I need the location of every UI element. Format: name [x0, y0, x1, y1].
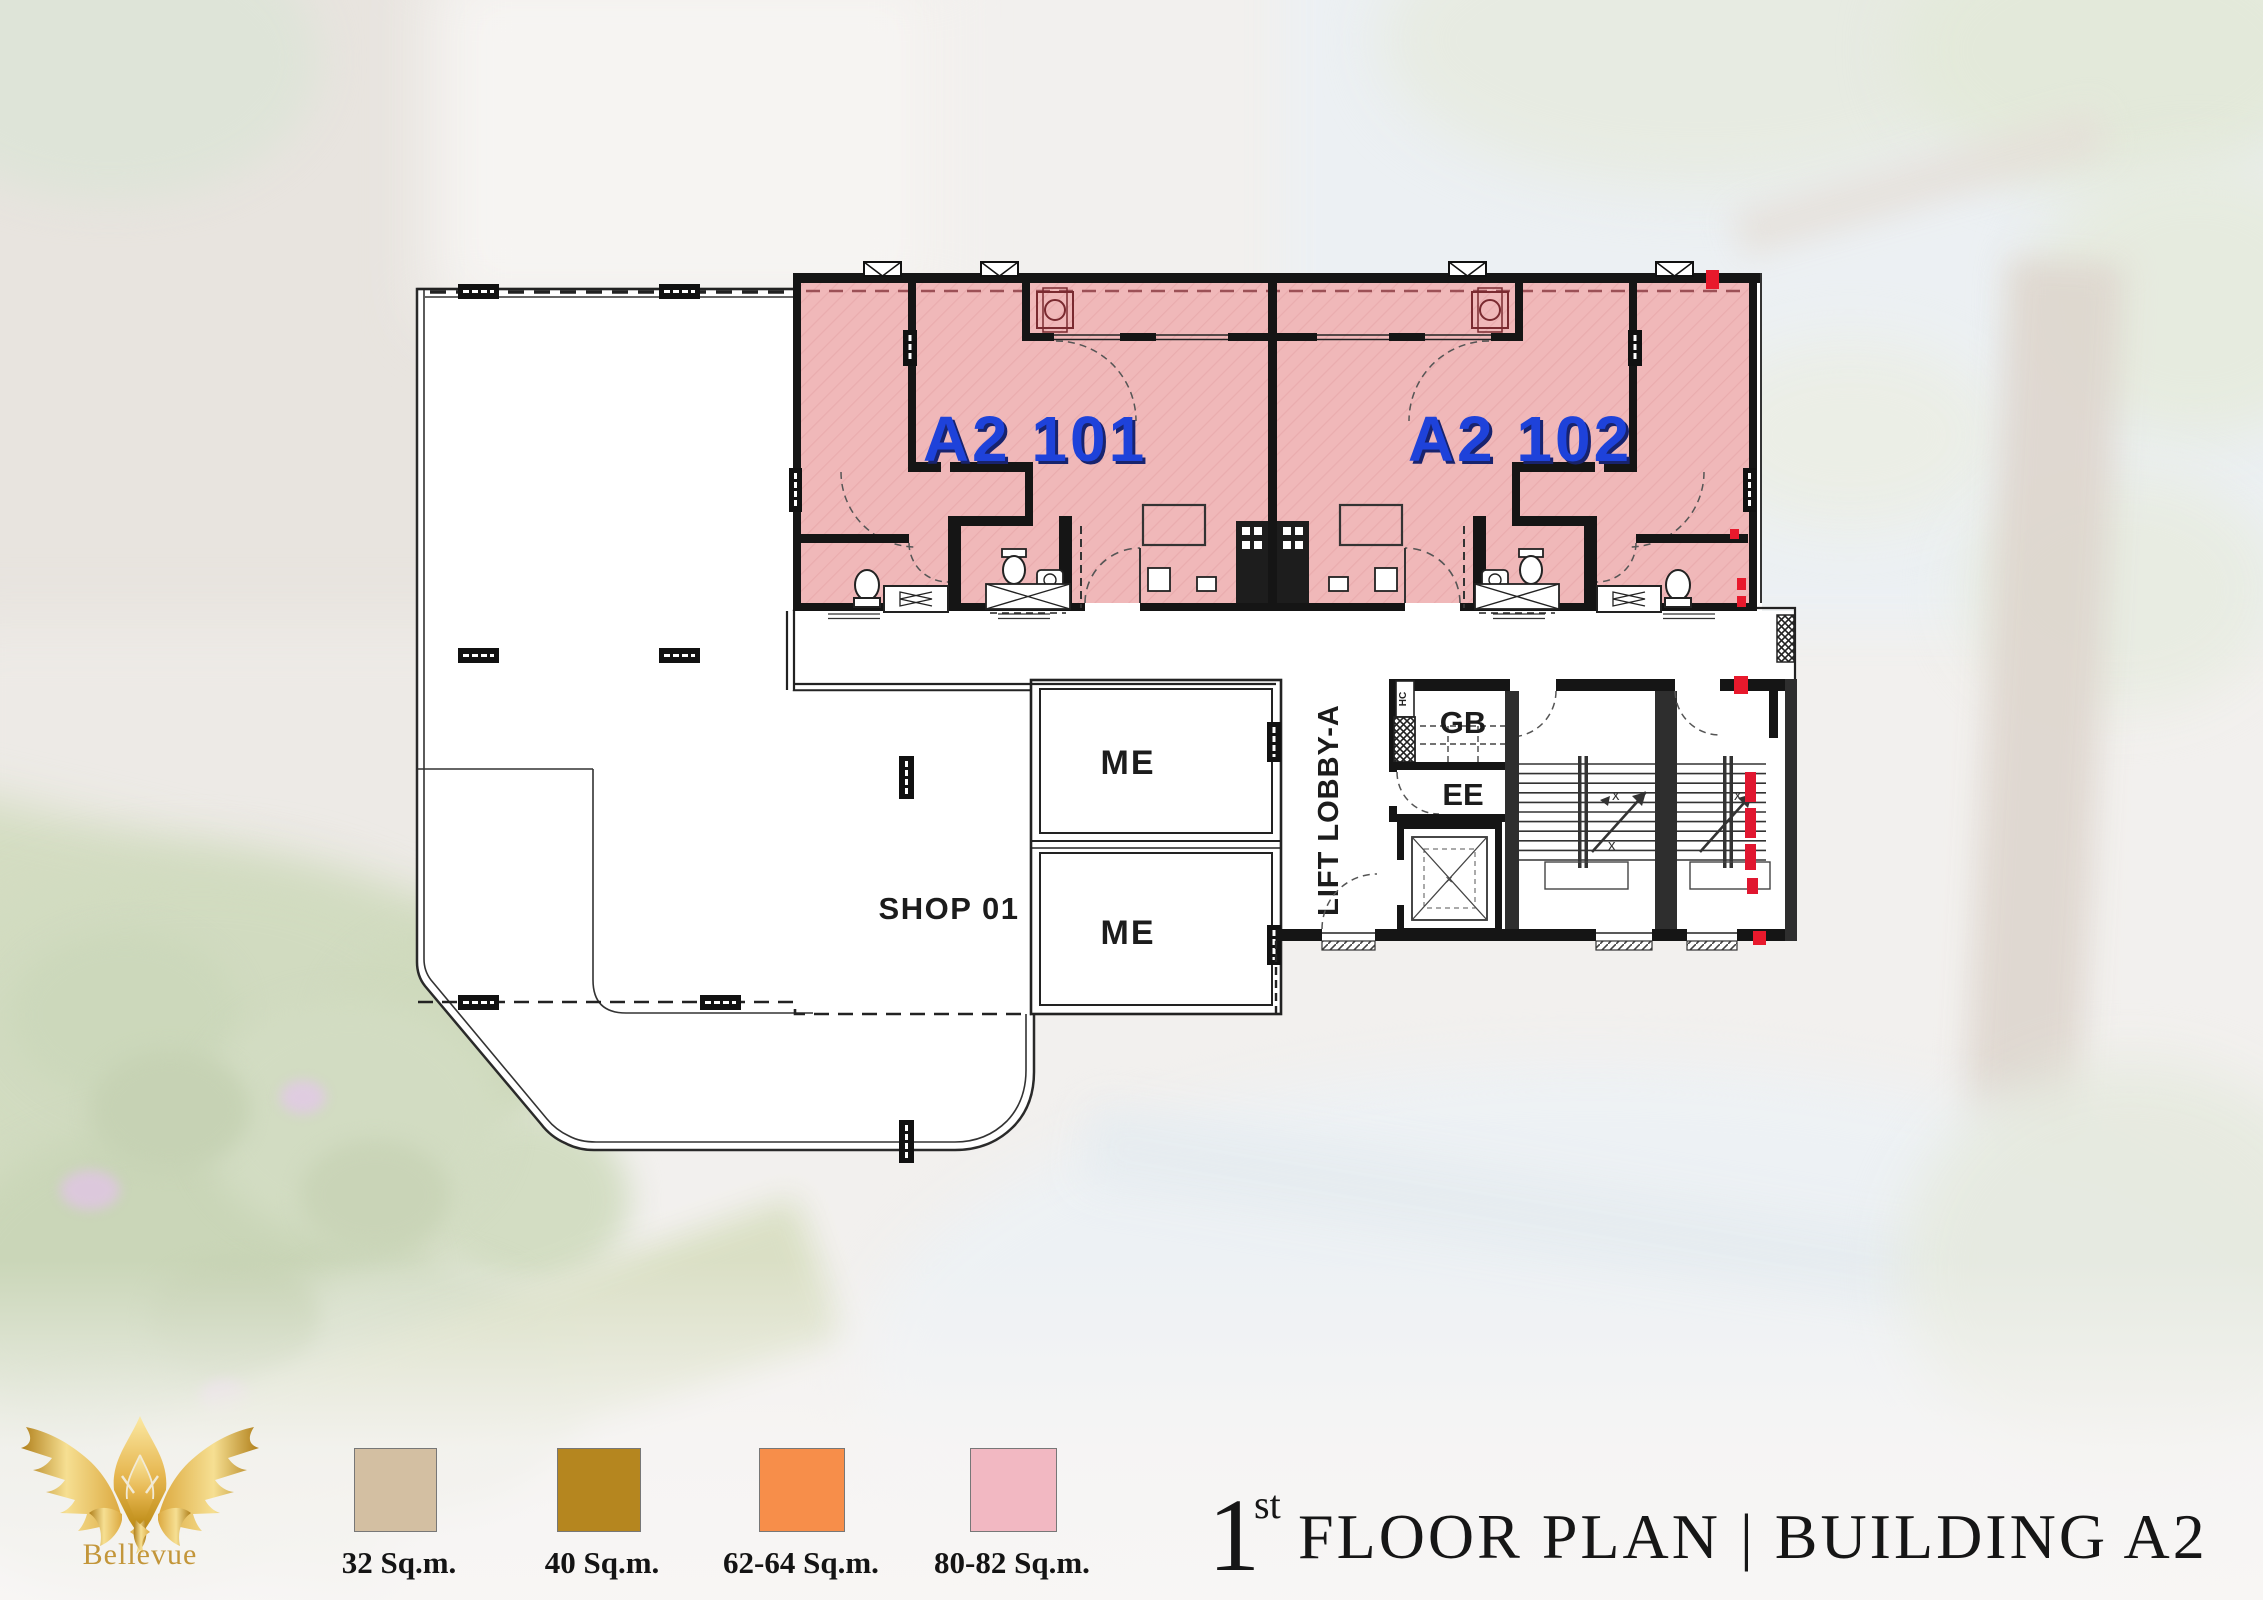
svg-text:Bellevue: Bellevue: [83, 1538, 198, 1571]
svg-text:ME: ME: [1101, 744, 1156, 782]
svg-text:x: x: [1608, 837, 1616, 854]
svg-text:SHOP 01: SHOP 01: [879, 891, 1020, 926]
svg-text:EE: EE: [1442, 777, 1483, 812]
svg-text:1: 1: [1208, 1478, 1260, 1593]
svg-text:LIFT LOBBY-A: LIFT LOBBY-A: [1313, 704, 1345, 916]
svg-text:st: st: [1254, 1482, 1281, 1527]
svg-text:×: ×: [1445, 872, 1453, 887]
svg-text:GB: GB: [1440, 705, 1487, 740]
svg-text:x: x: [1612, 787, 1620, 804]
svg-text:A2 101: A2 101: [923, 403, 1147, 475]
svg-text:HC: HC: [1398, 692, 1409, 706]
svg-text:ME: ME: [1101, 914, 1156, 952]
svg-text:A2 102: A2 102: [1408, 403, 1632, 475]
svg-text:FLOOR PLAN | BUILDING A2: FLOOR PLAN | BUILDING A2: [1298, 1501, 2208, 1572]
svg-text:x: x: [1734, 787, 1742, 804]
